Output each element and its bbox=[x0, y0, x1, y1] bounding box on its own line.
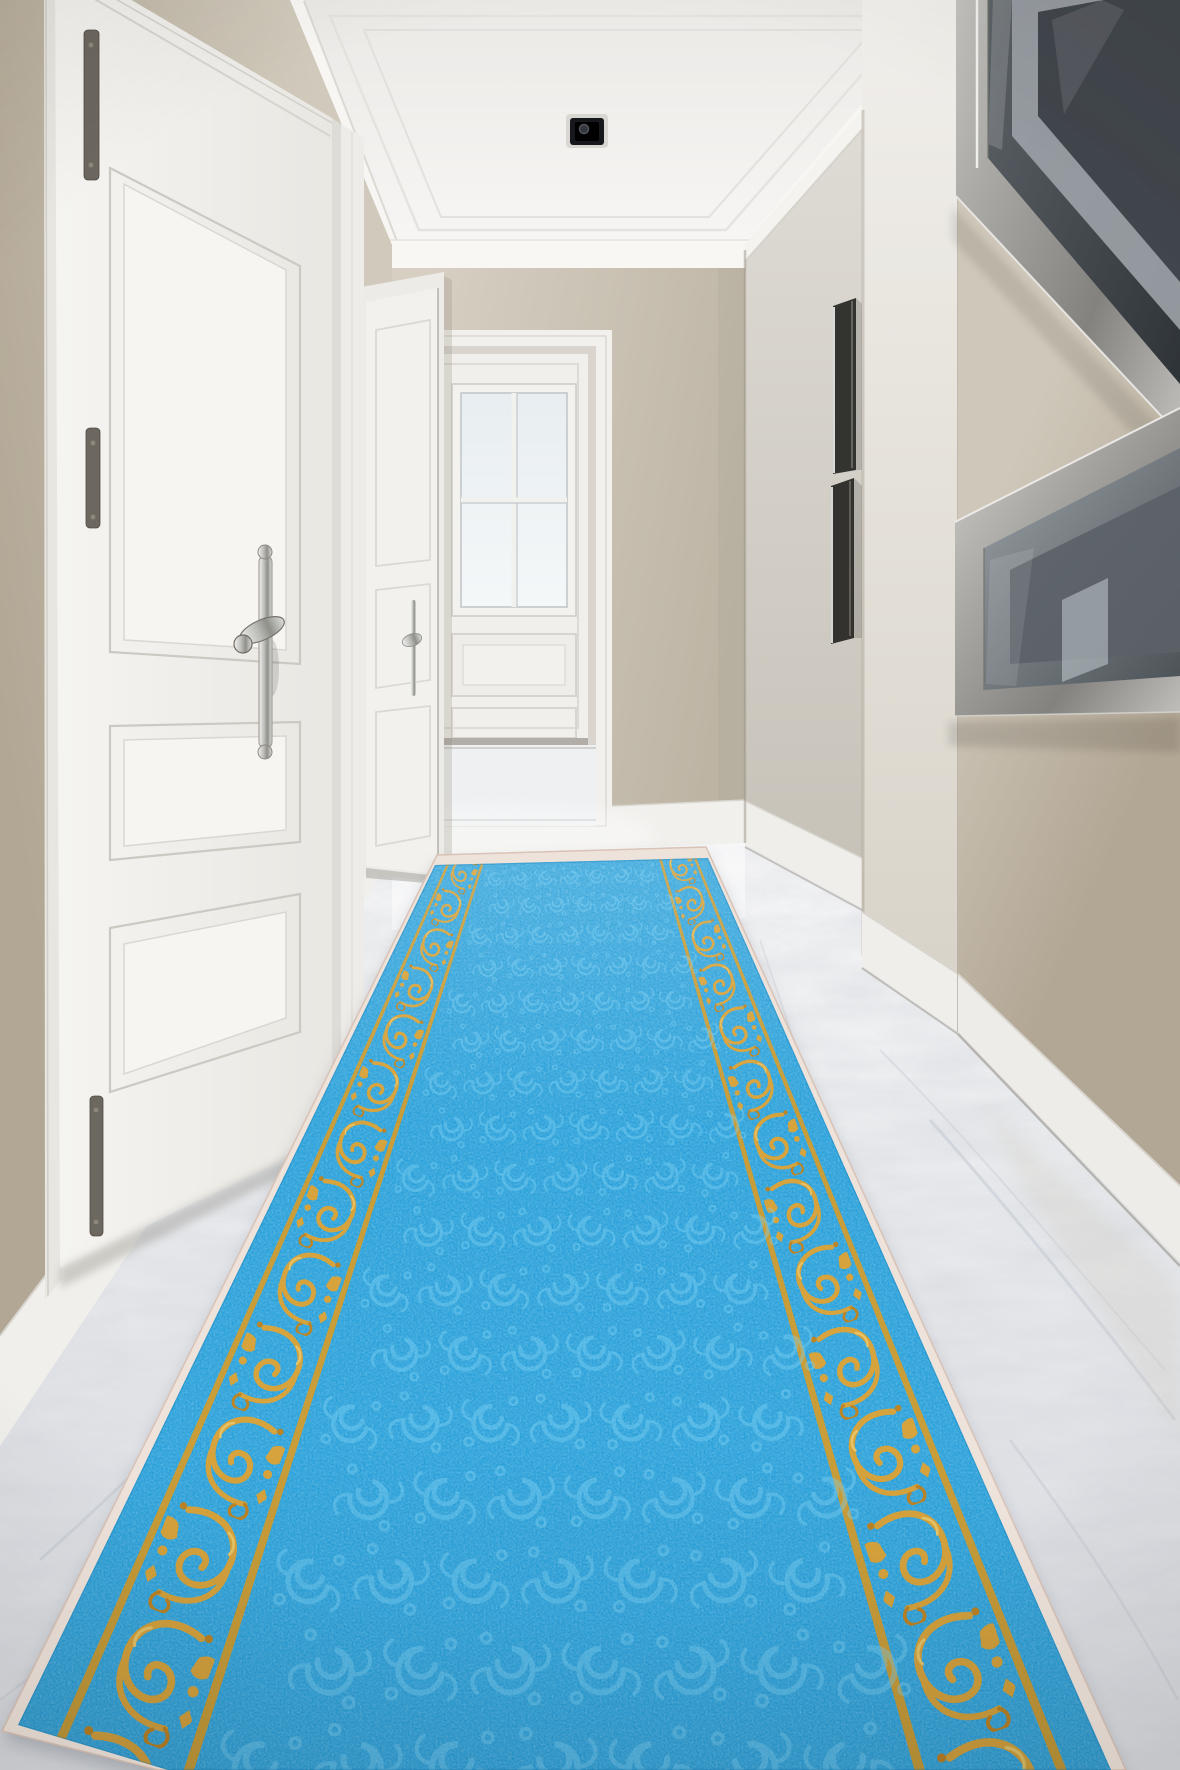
photo-vignette bbox=[0, 0, 1180, 1770]
hallway-scene-svg bbox=[0, 0, 1180, 1770]
hallway-product-photo bbox=[0, 0, 1180, 1770]
